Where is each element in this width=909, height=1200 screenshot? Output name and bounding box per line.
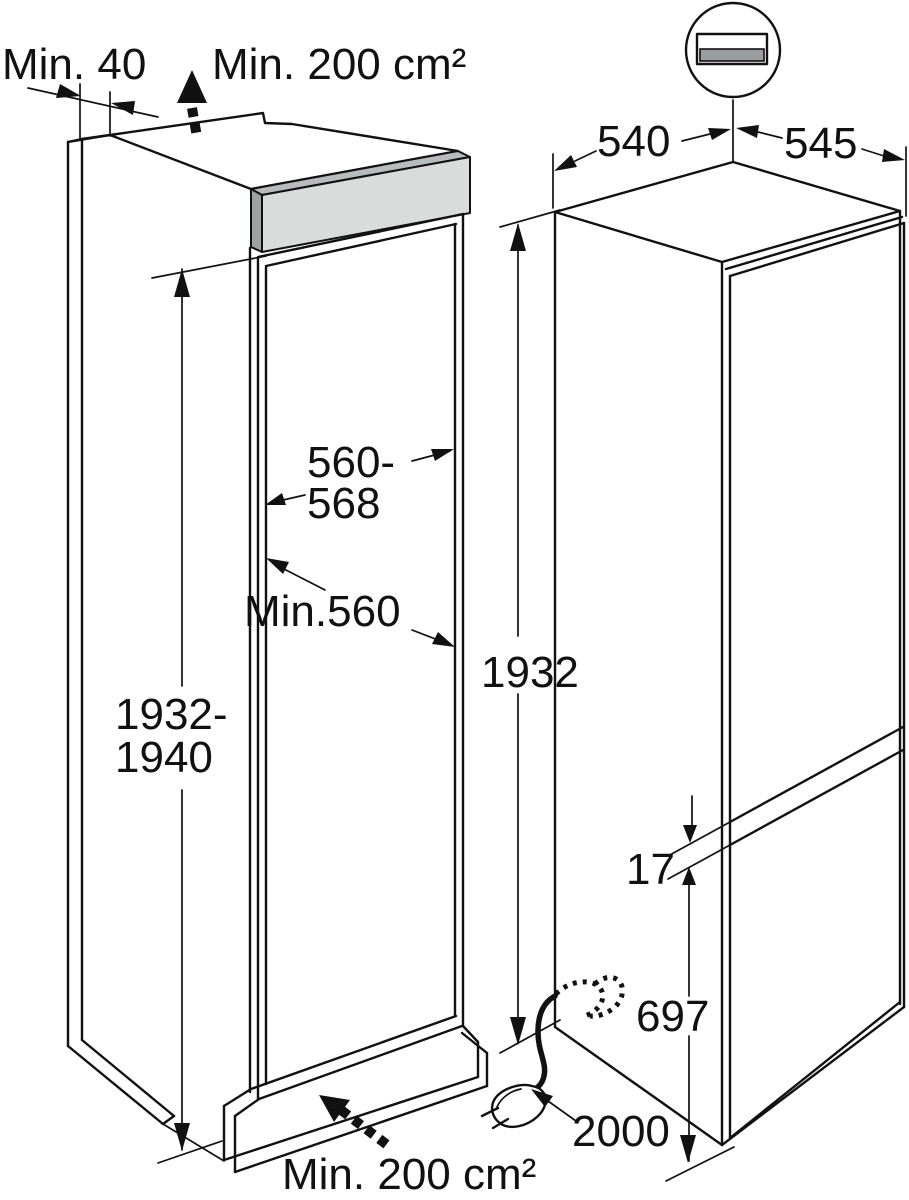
label-vent-area-top: Min. 200 cm² bbox=[212, 40, 466, 89]
cable bbox=[528, 996, 555, 1091]
cable-area-outline bbox=[556, 982, 603, 1017]
niche-floor bbox=[251, 1016, 456, 1089]
label-width: 545 bbox=[784, 119, 857, 168]
label-door-gap: 17 bbox=[626, 845, 675, 894]
arrow-down-icon bbox=[174, 1123, 190, 1151]
appliance-figure bbox=[555, 162, 904, 1145]
label-lower-section: 697 bbox=[636, 992, 709, 1041]
label-height: 1932 bbox=[481, 648, 579, 697]
installation-diagram: Min. 40 Min. 200 cm² 560- 568 Min.560 19… bbox=[0, 0, 909, 1200]
arrow-down-icon bbox=[680, 1135, 696, 1163]
label-niche-min-width: Min.560 bbox=[244, 587, 401, 636]
label-niche-width-line2: 568 bbox=[307, 479, 380, 528]
diagram-canvas: Min. 40 Min. 200 cm² 560- 568 Min.560 19… bbox=[0, 0, 909, 1200]
label-vent-area-bottom: Min. 200 cm² bbox=[282, 1150, 536, 1199]
dim-appliance-height bbox=[500, 210, 560, 1053]
label-niche-rear-gap: Min. 40 bbox=[2, 40, 146, 89]
label-niche-height-line2: 1940 bbox=[115, 733, 213, 782]
door-divider bbox=[730, 727, 903, 822]
niche-figure bbox=[68, 113, 487, 1172]
appliance-top-face bbox=[555, 162, 900, 262]
label-depth: 540 bbox=[597, 117, 670, 166]
grille-gray-band bbox=[700, 49, 764, 61]
arrow-up-icon bbox=[510, 223, 526, 251]
label-cable-length: 2000 bbox=[572, 1107, 670, 1156]
power-cable bbox=[482, 977, 622, 1128]
label-niche-height-line1: 1932- bbox=[115, 690, 228, 739]
